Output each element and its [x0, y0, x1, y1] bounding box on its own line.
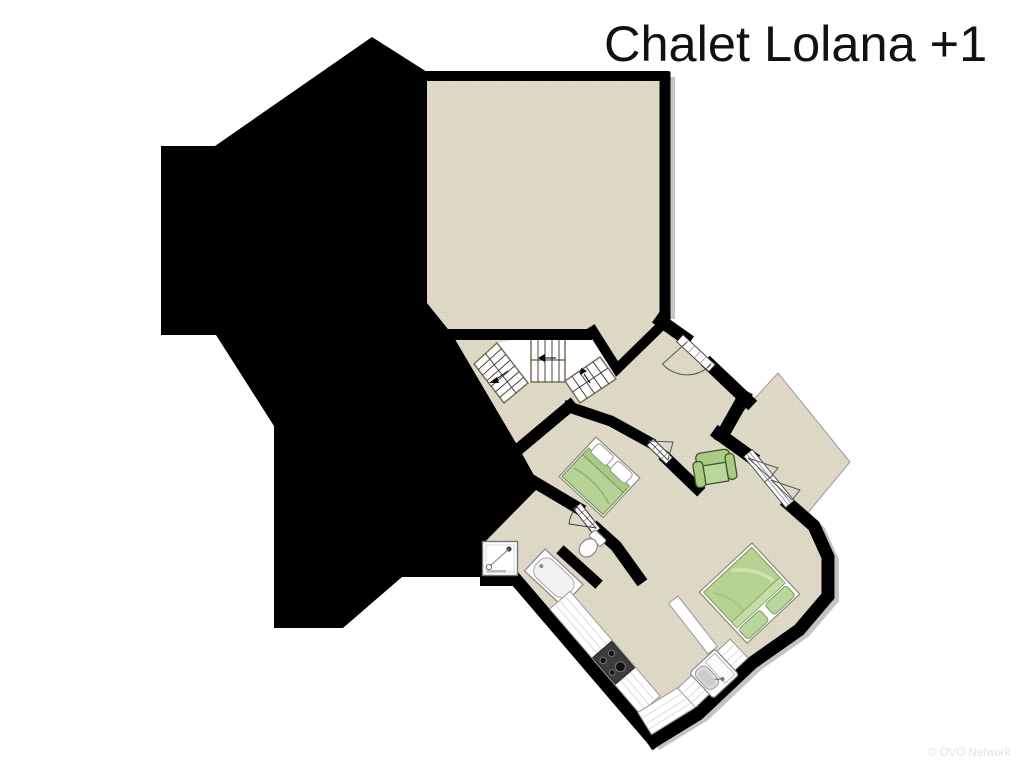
svg-text:Chalet Lolana +1: Chalet Lolana +1: [604, 15, 987, 72]
svg-text:© OVO Network: © OVO Network: [928, 747, 1011, 759]
